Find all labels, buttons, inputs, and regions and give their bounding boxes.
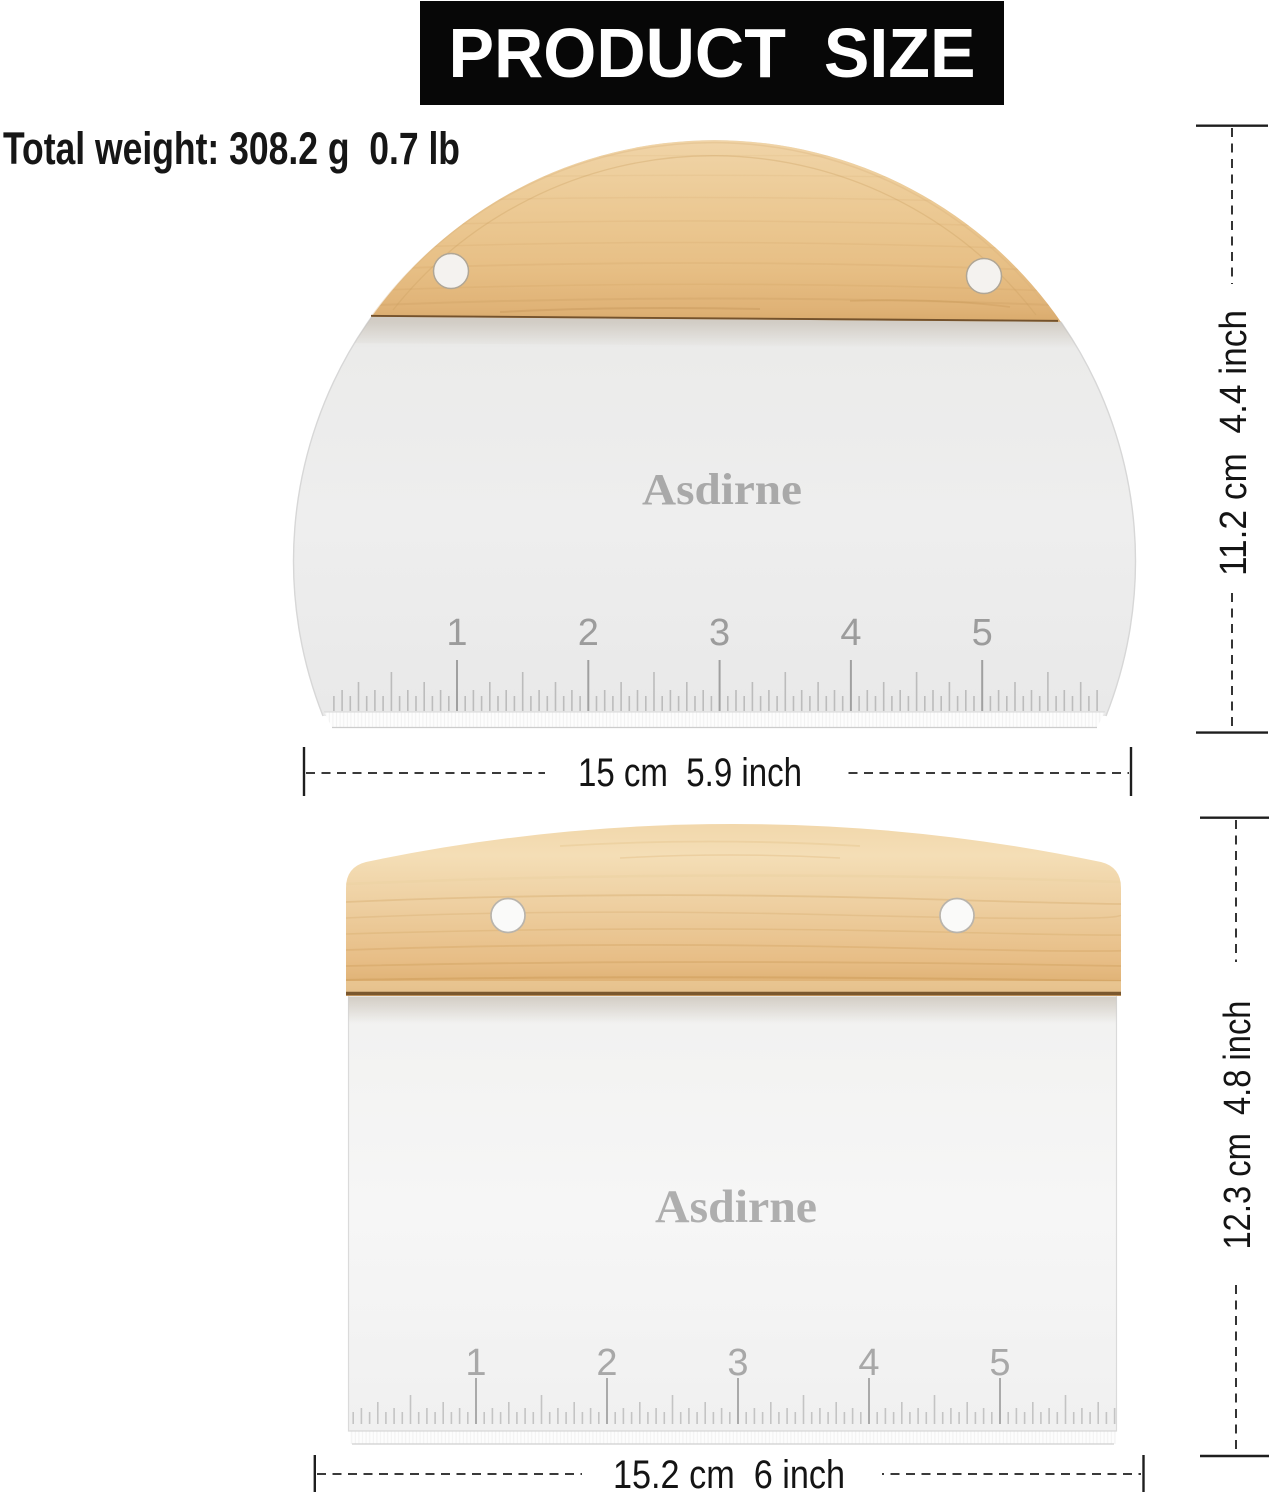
- svg-text:5: 5: [972, 612, 993, 654]
- svg-text:1: 1: [446, 612, 467, 654]
- svg-text:4: 4: [840, 612, 861, 654]
- svg-text:1: 1: [465, 1342, 486, 1384]
- svg-text:4: 4: [858, 1342, 879, 1384]
- svg-text:2: 2: [596, 1342, 617, 1384]
- svg-text:3: 3: [709, 612, 730, 654]
- svg-text:11.2 cm 4.4 inch: 11.2 cm 4.4 inch: [1213, 310, 1255, 576]
- svg-text:2: 2: [578, 612, 599, 654]
- svg-text:Total weight: 308.2 g 0.7 lb: Total weight: 308.2 g 0.7 lb: [3, 123, 460, 174]
- svg-text:PRODUCT SIZE: PRODUCT SIZE: [449, 14, 976, 92]
- svg-text:Asdirne: Asdirne: [655, 1181, 817, 1233]
- svg-text:15.2 cm 6 inch: 15.2 cm 6 inch: [613, 1453, 845, 1497]
- svg-text:12.3 cm 4.8 inch: 12.3 cm 4.8 inch: [1217, 1001, 1259, 1250]
- svg-text:Asdirne: Asdirne: [642, 465, 802, 514]
- svg-text:15 cm 5.9 inch: 15 cm 5.9 inch: [578, 751, 802, 795]
- svg-text:3: 3: [727, 1342, 748, 1384]
- svg-text:5: 5: [989, 1342, 1010, 1384]
